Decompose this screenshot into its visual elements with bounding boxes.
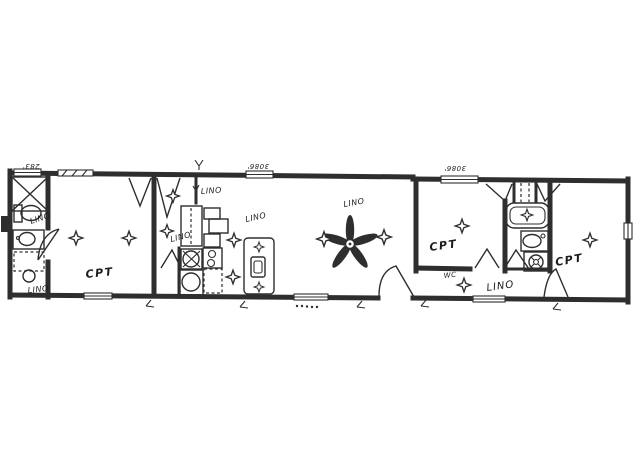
bath-sink-icon xyxy=(521,231,548,251)
room-label-bedroom-left: CPT xyxy=(85,265,114,281)
range-icon xyxy=(180,270,203,295)
door-swing-entry xyxy=(379,266,414,297)
window-kitchen-top xyxy=(246,171,273,178)
ceiling-light-icon xyxy=(69,231,83,245)
ceiling-light-icon xyxy=(122,231,136,245)
cabinet xyxy=(204,234,220,247)
window-corridor-bottom xyxy=(473,296,505,302)
tick-mark xyxy=(553,303,561,310)
window-size-label-bedroom-middle: 3086' xyxy=(444,164,466,172)
window-living-bottom xyxy=(294,294,328,300)
tick-mark xyxy=(146,300,154,307)
ceiling-light-icon xyxy=(457,278,471,292)
corridor: WC LINO xyxy=(443,271,515,294)
dishwasher-icon xyxy=(204,269,222,293)
ceiling-light-icon xyxy=(455,219,469,233)
window-bedroom-left-top xyxy=(58,170,93,176)
kitchen-sink-icon xyxy=(203,248,222,268)
floor-label-corridor: LINO xyxy=(486,279,515,294)
y-mark xyxy=(195,160,203,170)
cabinet-dashed xyxy=(14,252,44,271)
bottom-wall-right xyxy=(413,298,628,300)
ceiling-light-icon xyxy=(254,242,264,252)
kitchen: LINO xyxy=(180,206,274,295)
ceiling-light-icon xyxy=(521,209,533,221)
left-utility: LINO xyxy=(14,252,49,295)
left-bathroom: LINO xyxy=(12,177,59,260)
floor-label-hall-top: LINO xyxy=(201,186,223,196)
ceiling-light-icon xyxy=(254,282,264,292)
ceiling-light-icon xyxy=(226,270,240,284)
label-water-closet: WC xyxy=(443,271,457,280)
room-label-bedroom-right: CPT xyxy=(554,251,584,269)
closet-door-swing-left xyxy=(129,178,151,206)
window-size-label-bath-left: 283' xyxy=(22,162,39,170)
floor-label-living: LINO xyxy=(343,196,365,209)
ceiling-light-icon xyxy=(583,233,597,247)
bedroom-left: CPT xyxy=(69,178,151,281)
window-bedroom-right-side xyxy=(624,223,632,239)
living-room: LINO xyxy=(317,196,414,297)
cabinet xyxy=(204,208,220,219)
interior-walls xyxy=(48,175,550,297)
door-swing-bathroom xyxy=(504,250,529,269)
tick-mark xyxy=(357,301,365,308)
window-size-label-kitchen: 3086' xyxy=(247,162,269,170)
ceiling-light-icon xyxy=(227,233,241,247)
ceiling-light-icon xyxy=(377,230,391,244)
door-swing-bedroom-middle xyxy=(475,249,499,268)
bedroom-middle: CPT xyxy=(429,219,529,269)
ceiling-fan-icon xyxy=(321,215,379,270)
window-bedroom-left-bottom xyxy=(84,293,112,299)
door-swing-bath-left xyxy=(38,229,59,260)
bedroom-middle-bottom-wall xyxy=(416,268,470,269)
door-swing-bath-entry-left xyxy=(486,184,512,201)
floor-plan-sheet: LINO LINO CPT LINO LINO xyxy=(0,0,638,473)
ceiling-light-icon xyxy=(167,190,180,203)
floor-plan-drawing: LINO LINO CPT LINO LINO xyxy=(0,0,638,473)
sink-vanity-icon xyxy=(13,230,44,249)
floor-label-kitchen: LINO xyxy=(245,211,268,224)
cabinet xyxy=(209,219,228,233)
washer-icon xyxy=(181,249,202,269)
exterior-step xyxy=(1,216,10,232)
room-label-bedroom-middle: CPT xyxy=(429,237,459,254)
tick-mark xyxy=(240,301,248,308)
dotted-mark xyxy=(296,305,318,308)
exterior-walls xyxy=(1,171,628,302)
kitchen-island xyxy=(244,238,274,294)
water-heater-icon xyxy=(23,270,35,282)
hallway: LINO LINO xyxy=(157,178,222,268)
window-bedroom-middle-top xyxy=(441,176,478,183)
tick-mark xyxy=(421,300,429,307)
